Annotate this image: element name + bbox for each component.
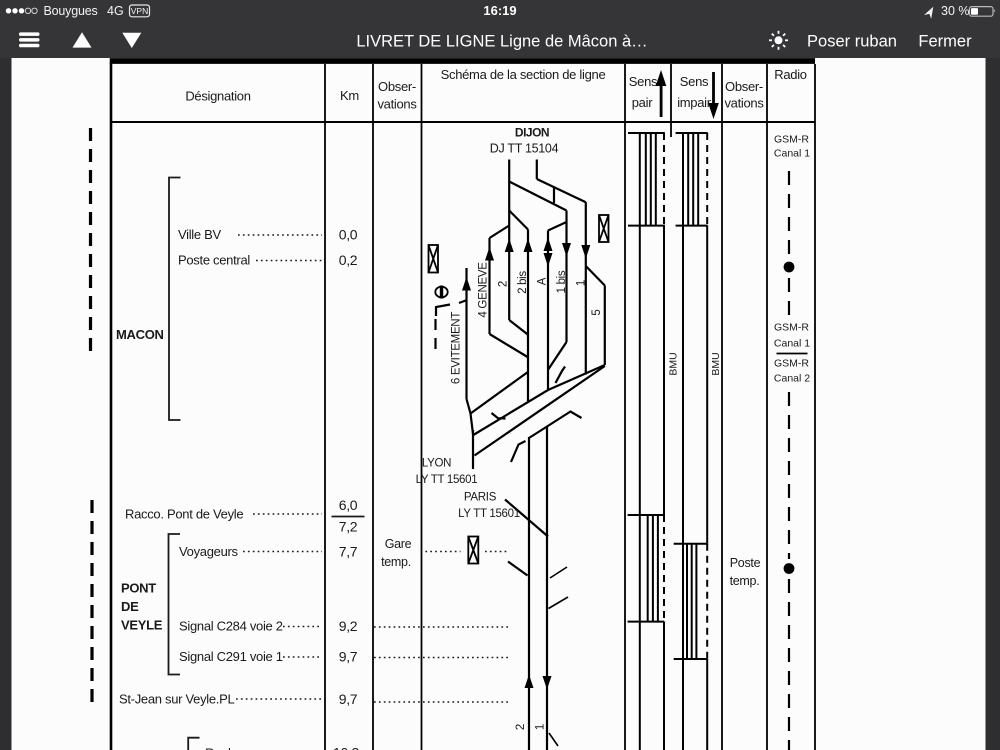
svg-text:Km: Km — [340, 88, 359, 103]
svg-text:2: 2 — [497, 281, 509, 287]
svg-text:LY TT 15601: LY TT 15601 — [458, 508, 520, 520]
svg-text:Fermer: Fermer — [918, 33, 972, 51]
svg-text:Bouygues: Bouygues — [44, 4, 98, 18]
svg-text:BMU: BMU — [710, 352, 722, 375]
svg-text:DJ TT 15104: DJ TT 15104 — [490, 142, 559, 156]
svg-text:9,2: 9,2 — [339, 618, 358, 634]
svg-text:Canal 1: Canal 1 — [774, 338, 810, 350]
svg-text:vations: vations — [377, 97, 417, 112]
svg-text:LY TT 15601: LY TT 15601 — [416, 474, 478, 486]
svg-text:Sens: Sens — [680, 74, 709, 89]
svg-text:PONT: PONT — [121, 581, 156, 596]
svg-text:Désignation: Désignation — [185, 89, 250, 104]
svg-text:30 %: 30 % — [941, 4, 970, 18]
svg-text:Racco. Pont de Veyle: Racco. Pont de Veyle — [125, 507, 243, 522]
svg-text:PARIS: PARIS — [464, 492, 497, 504]
svg-text:Gare: Gare — [385, 537, 412, 551]
svg-text:1: 1 — [535, 724, 547, 730]
svg-text:LIVRET DE LIGNE Ligne de Mâcon: LIVRET DE LIGNE Ligne de Mâcon à… — [356, 33, 647, 51]
svg-text:7,7: 7,7 — [339, 544, 358, 560]
svg-text:Ville BV: Ville BV — [178, 227, 222, 242]
svg-text:LYON: LYON — [422, 458, 451, 470]
svg-text:VPN: VPN — [131, 6, 148, 16]
svg-text:2 bis: 2 bis — [517, 271, 529, 294]
svg-text:16:19: 16:19 — [483, 3, 516, 18]
svg-text:impair: impair — [677, 95, 712, 110]
svg-text:Sens: Sens — [629, 74, 658, 89]
svg-text:Schéma de la section de ligne: Schéma de la section de ligne — [441, 67, 606, 82]
svg-text:Radio: Radio — [774, 67, 807, 82]
svg-text:Signal C291 voie 1: Signal C291 voie 1 — [179, 649, 283, 664]
svg-text:Poser ruban: Poser ruban — [807, 33, 897, 51]
svg-text:A: A — [537, 277, 549, 285]
svg-text:temp.: temp. — [730, 574, 760, 588]
svg-text:Obser-: Obser- — [725, 79, 763, 94]
svg-text:GSM-R: GSM-R — [774, 358, 809, 370]
svg-text:BMU: BMU — [668, 352, 680, 375]
svg-text:6 EVITEMENT: 6 EVITEMENT — [451, 312, 463, 384]
svg-text:1 bis: 1 bis — [556, 270, 568, 293]
svg-text:0,0: 0,0 — [339, 227, 358, 243]
svg-text:7,2: 7,2 — [339, 519, 358, 535]
svg-text:MACON: MACON — [116, 327, 164, 342]
svg-text:St-Jean sur Veyle.PL: St-Jean sur Veyle.PL — [119, 692, 234, 707]
svg-text:Poste central: Poste central — [178, 253, 250, 268]
svg-text:Canal 1: Canal 1 — [774, 148, 810, 160]
svg-text:2: 2 — [515, 724, 527, 730]
svg-text:vations: vations — [724, 96, 764, 111]
svg-text:Voyageurs: Voyageurs — [179, 544, 239, 559]
svg-text:6,0: 6,0 — [339, 497, 358, 513]
svg-text:4 GENEVE: 4 GENEVE — [478, 262, 490, 318]
svg-text:9,7: 9,7 — [339, 649, 358, 665]
svg-text:DE: DE — [121, 599, 139, 614]
svg-text:GSM-R: GSM-R — [774, 322, 809, 334]
svg-text:Obser-: Obser- — [378, 79, 416, 94]
svg-text:5: 5 — [591, 309, 603, 315]
svg-text:1: 1 — [576, 280, 588, 286]
svg-text:Poste: Poste — [730, 556, 761, 570]
svg-text:9,7: 9,7 — [339, 691, 358, 707]
svg-text:10,3: 10,3 — [333, 745, 360, 750]
svg-text:pair: pair — [632, 95, 653, 110]
svg-text:Canal 2: Canal 2 — [774, 373, 810, 385]
svg-text:temp.: temp. — [381, 555, 411, 569]
svg-text:4G: 4G — [107, 4, 124, 18]
svg-text:VEYLE: VEYLE — [121, 618, 163, 633]
svg-text:0,2: 0,2 — [339, 252, 358, 268]
svg-text:Replonges: Replonges — [205, 746, 265, 750]
svg-text:GSM-R: GSM-R — [774, 134, 809, 146]
svg-text:Signal C284 voie 2: Signal C284 voie 2 — [179, 619, 283, 634]
svg-text:DIJON: DIJON — [515, 126, 549, 140]
